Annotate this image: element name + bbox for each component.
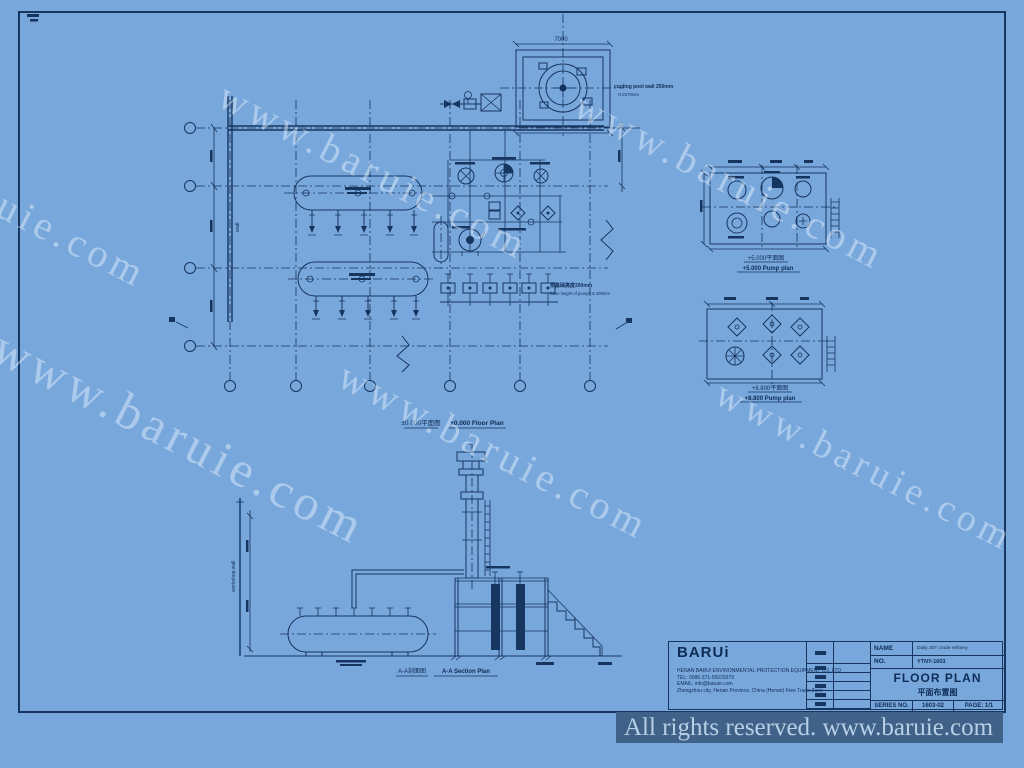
signature-label-mark: [815, 684, 826, 688]
section-caption-zh: A-A剖面图: [398, 667, 426, 675]
no-field-value: YTNY-1603: [913, 655, 1004, 668]
equipment-cluster: [432, 157, 566, 268]
pool-wall-note: cooling pool wall 250mm: [614, 84, 674, 90]
title-block-fields: NAME Daily 30T crude refinery NO. YTNY-1…: [871, 642, 1004, 709]
pump-row: 泵基础高度200mm Base height of pumps is 200mm: [440, 274, 610, 306]
signature-label-mark: [815, 651, 826, 655]
plan-8800-detail: +8.800平面图 +8.800 Pump plan: [699, 297, 835, 402]
wall-label: wall: [235, 223, 241, 233]
name-field-value: Daily 30T crude refinery: [913, 642, 1004, 655]
drawing-title-en: FLOOR PLAN: [894, 671, 982, 685]
floor-plan-caption-en: ±0.000 Floor Plan: [450, 420, 503, 427]
section-view: workshop wall: [231, 444, 622, 676]
company-logo: BARUi: [677, 644, 806, 661]
pumps: [441, 283, 555, 293]
no-field-label: NO.: [871, 655, 913, 668]
signature-label-mark: [815, 666, 826, 670]
vessel1-nozzles: [308, 210, 418, 235]
horizontal-vessel-2: [288, 262, 436, 319]
floor-plan-caption: ±0.000平面图 ±0.000 Floor Plan: [401, 419, 506, 428]
series-no-value: 1603-02: [913, 700, 954, 711]
pump-base-note-en: Base height of pumps is 200mm: [550, 291, 610, 296]
plan-5000-detail: +5.000平面图 +5.000 Pump plan: [700, 160, 839, 272]
copyright-banner: All rights reserved. www.baruie.com: [616, 712, 1003, 743]
plan-8800-caption-en: +8.800 Pump plan: [745, 396, 796, 402]
plan-5000-caption-en: +5.000 Pump plan: [743, 266, 794, 272]
workshop-wall-label: workshop wall: [231, 561, 237, 592]
title-block-company: BARUi HENAN BARUI ENVIRONMENTAL PROTECTI…: [669, 642, 807, 709]
title-block-signature-column: [807, 642, 834, 709]
plan-5000-caption-zh: +5.000平面图: [748, 255, 785, 262]
title-block: BARUi HENAN BARUI ENVIRONMENTAL PROTECTI…: [668, 641, 1003, 710]
drawing-sheet: wall 7000 cooling pool wall 250mm: [0, 0, 1024, 768]
signature-label-mark: [815, 693, 826, 697]
name-field-label: NAME: [871, 642, 913, 655]
section-caption-en: A-A Section Plan: [442, 669, 490, 675]
pump-base-note-zh: 泵基础高度200mm: [550, 282, 593, 289]
drawing-title-zh: 平面布置图: [918, 687, 958, 698]
company-name-line: HENAN BARUI ENVIRONMENTAL PROTECTION EQU…: [677, 668, 806, 675]
signature-label-mark: [815, 702, 826, 706]
plan-8800-caption-zh: +8.800平面图: [752, 385, 789, 392]
pool-width-dim: 7000: [554, 37, 568, 43]
floor-plan-caption-zh: ±0.000平面图: [401, 419, 440, 427]
vessel2-nozzles: [312, 296, 420, 319]
company-address-line: Zhengzhou city, Henan Province, China (H…: [677, 688, 806, 695]
horizontal-vessel-1: [284, 176, 432, 235]
series-no-label: SERIES NO.: [871, 700, 913, 711]
corner-marks: [27, 14, 39, 22]
cooling-pool-detail: 7000 cooling pool wall 250mm H:2370mm: [440, 14, 674, 166]
pool-depth-note: H:2370mm: [618, 92, 639, 97]
title-block-signature-cells: [834, 642, 871, 709]
copyright-text: All rights reserved. www.baruie.com: [624, 714, 993, 741]
signature-label-mark: [815, 675, 826, 679]
grid-axes: [185, 100, 641, 392]
page-label: PAGE: 1/1: [954, 700, 1004, 711]
